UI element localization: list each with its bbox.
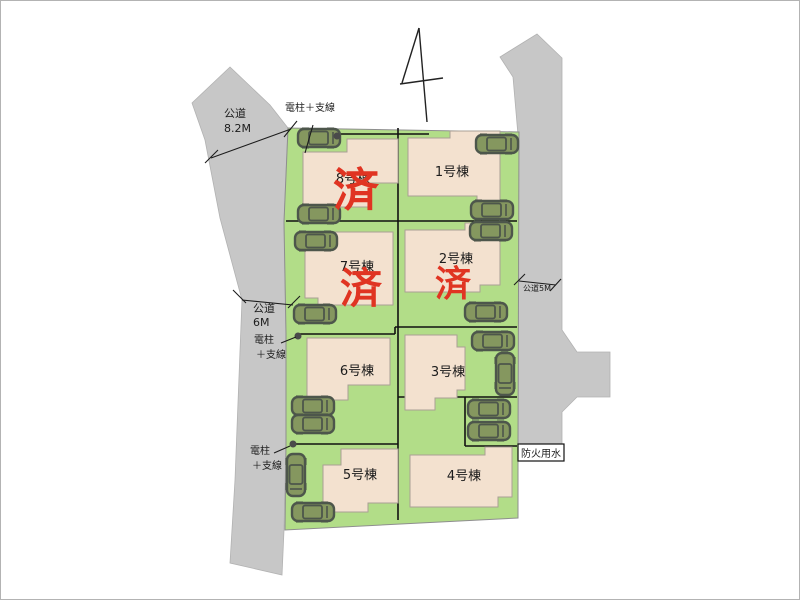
utility-pole-icon — [295, 333, 302, 340]
lot-label-3: 3号棟 — [431, 365, 465, 380]
road-west-width-label-line1: 公道 — [224, 106, 246, 120]
car-icon — [286, 454, 307, 496]
pole-bottom-label-line1: 電柱 — [250, 444, 270, 457]
road-west-lower-width-label-line1: 公道 — [253, 301, 275, 315]
sold-stamp-lot-2: 済 — [435, 264, 471, 305]
fire-water-badge: 防火用水 — [518, 444, 564, 461]
utility-pole-icon — [334, 133, 341, 140]
car-icon — [468, 399, 510, 420]
car-icon — [470, 221, 512, 242]
car-icon — [476, 134, 518, 155]
car-icon — [295, 231, 337, 252]
car-icon — [468, 421, 510, 442]
road-east-width-label: 公道5M — [523, 283, 551, 293]
fire-water-label: 防火用水 — [521, 447, 561, 460]
car-icon — [292, 502, 334, 523]
lot-label-6: 6号棟 — [340, 364, 374, 379]
road-west-lower-width-label-line2: 6M — [253, 316, 270, 329]
car-icon — [495, 353, 516, 395]
pole-top-label: 電柱＋支線 — [285, 101, 335, 114]
lot-label-4: 4号棟 — [447, 469, 481, 484]
pole-mid-label-line2: ＋支線 — [256, 348, 286, 361]
subdivision-site-plan: 公道 8.2M 公道 6M 公道5M 電柱＋支線 電柱 ＋支線 電柱 ＋支線 防… — [0, 0, 800, 600]
car-icon — [298, 128, 340, 149]
car-icon — [292, 396, 334, 417]
lot-label-5: 5号棟 — [343, 468, 377, 483]
pole-mid-label-line1: 電柱 — [254, 333, 274, 346]
pole-bottom-label-line2: ＋支線 — [252, 459, 282, 472]
utility-pole-icon — [290, 441, 297, 448]
sold-stamp-lot-8: 済 — [333, 163, 380, 217]
car-icon — [472, 331, 514, 352]
car-icon — [292, 414, 334, 435]
site-plan-page: 公道 8.2M 公道 6M 公道5M 電柱＋支線 電柱 ＋支線 電柱 ＋支線 防… — [0, 0, 800, 600]
road-west-width-label-line2: 8.2M — [224, 122, 251, 135]
sold-stamp-lot-7: 済 — [340, 264, 383, 313]
car-icon — [465, 302, 507, 323]
lot-label-1: 1号棟 — [435, 165, 469, 180]
car-icon — [471, 200, 513, 221]
car-icon — [294, 304, 336, 325]
